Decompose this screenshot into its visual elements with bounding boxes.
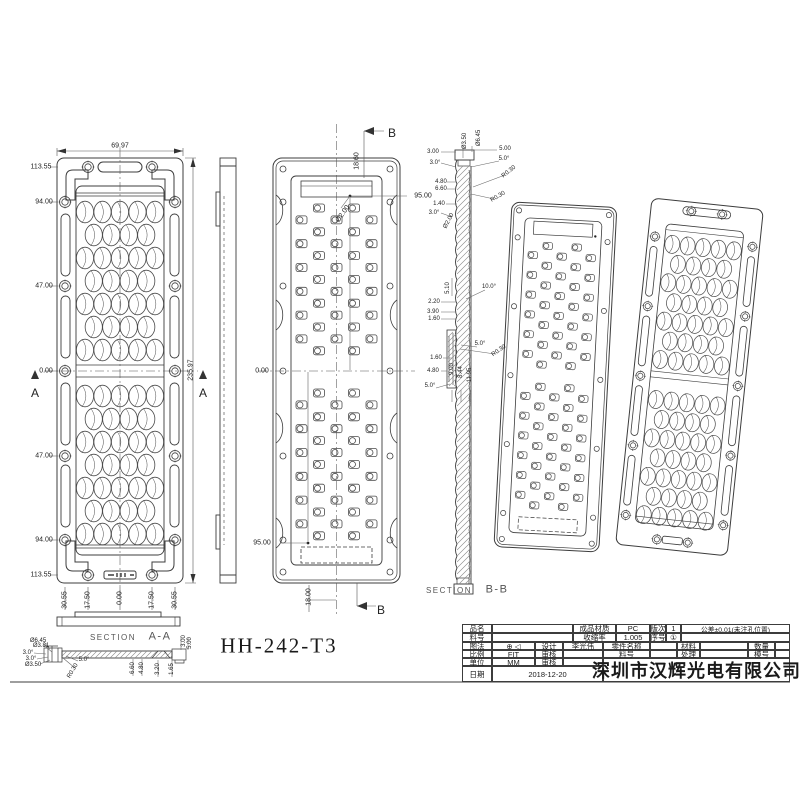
engineering-drawing-sheet: 69.97113.5594.0047.000.0047.0094.00113.5… [0,0,800,800]
back-view [273,158,407,583]
side-view [216,158,236,583]
dimension-lines [31,124,415,614]
drawing-linework [0,0,800,800]
section-aa-view [34,638,188,677]
profile-view [57,612,180,626]
tilted-back-view [494,202,617,552]
tilted-front-view [616,198,764,556]
